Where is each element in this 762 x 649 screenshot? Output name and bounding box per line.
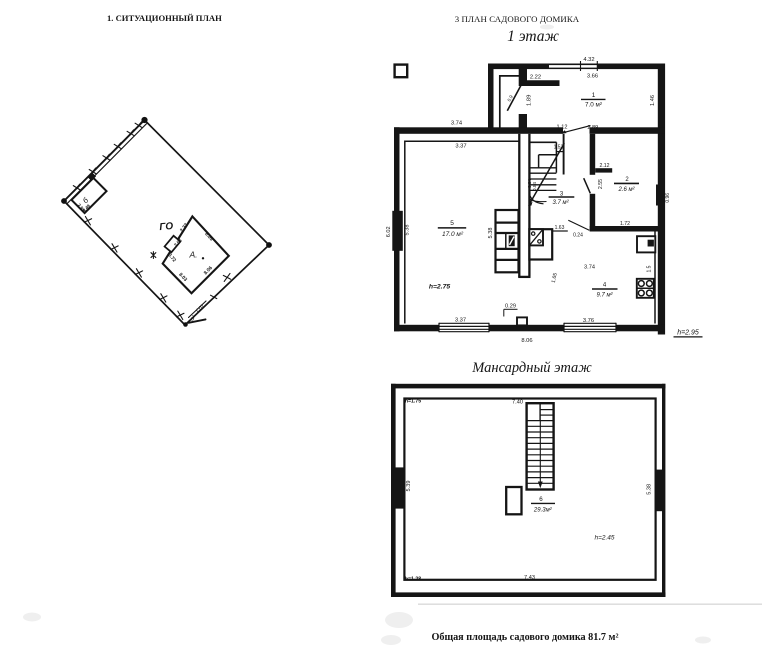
svg-text:1 этаж: 1 этаж — [507, 28, 559, 45]
svg-text:1: 1 — [592, 92, 596, 99]
svg-text:0.24: 0.24 — [573, 232, 583, 238]
svg-text:5.39: 5.39 — [406, 481, 412, 492]
svg-text:9.7 м²: 9.7 м² — [596, 292, 613, 298]
svg-text:5.38: 5.38 — [646, 484, 652, 495]
svg-text:3 ПЛАН САДОВОГО ДОМИКА: 3 ПЛАН САДОВОГО ДОМИКА — [455, 14, 580, 24]
svg-text:h=2.45: h=2.45 — [594, 535, 614, 542]
svg-text:3.37: 3.37 — [455, 144, 466, 150]
svg-text:0.84: 0.84 — [532, 182, 537, 191]
svg-text:1.72: 1.72 — [620, 221, 630, 227]
svg-text:2.22: 2.22 — [530, 74, 541, 80]
svg-text:3.74: 3.74 — [451, 121, 463, 127]
svg-text:5.38: 5.38 — [405, 225, 411, 236]
svg-text:2.89: 2.89 — [587, 125, 598, 131]
svg-text:Общая площадь садового домика: Общая площадь садового домика 81.7 м² — [431, 632, 618, 643]
svg-text:1.5: 1.5 — [647, 265, 653, 272]
svg-text:3.66: 3.66 — [587, 74, 598, 80]
svg-text:6.02: 6.02 — [386, 226, 392, 237]
svg-text:Мансардный этаж: Мансардный этаж — [471, 360, 592, 376]
svg-text:2.12: 2.12 — [599, 163, 609, 169]
svg-text:h=1.75: h=1.75 — [405, 399, 421, 405]
svg-text:1.89: 1.89 — [526, 95, 532, 106]
svg-text:h=2.75: h=2.75 — [429, 284, 451, 291]
svg-text:3.74: 3.74 — [584, 264, 595, 270]
svg-text:8.06: 8.06 — [521, 338, 532, 344]
svg-text:0.96: 0.96 — [665, 193, 671, 203]
svg-text:2.6 м²: 2.6 м² — [617, 187, 635, 193]
svg-text:1.63: 1.63 — [555, 225, 565, 231]
svg-text:2.55: 2.55 — [598, 179, 604, 189]
svg-text:1.46: 1.46 — [650, 95, 656, 106]
svg-text:1. СИТУАЦИОННЫЙ ПЛАН: 1. СИТУАЦИОННЫЙ ПЛАН — [107, 13, 222, 23]
svg-text:3.76: 3.76 — [583, 318, 594, 324]
svg-text:1.12: 1.12 — [557, 124, 568, 130]
svg-text:6: 6 — [539, 496, 543, 503]
svg-text:5.38: 5.38 — [488, 228, 494, 239]
svg-text:0.29: 0.29 — [505, 304, 516, 310]
svg-text:4.32: 4.32 — [583, 57, 594, 63]
svg-text:29.3м²: 29.3м² — [533, 508, 553, 514]
svg-text:5: 5 — [450, 220, 454, 227]
svg-text:1.52: 1.52 — [554, 144, 564, 150]
svg-text:7.40: 7.40 — [512, 399, 523, 405]
svg-text:h=1.28: h=1.28 — [405, 576, 421, 582]
svg-text:h=2.95: h=2.95 — [677, 330, 699, 337]
svg-text:А.: А. — [188, 250, 197, 260]
svg-text:7.0 м²: 7.0 м² — [585, 102, 602, 109]
svg-text:3.7 м²: 3.7 м² — [553, 200, 570, 206]
svg-text:ГО: ГО — [159, 221, 174, 233]
svg-text:3.37: 3.37 — [455, 318, 466, 324]
svg-text:7.43: 7.43 — [524, 575, 535, 581]
svg-text:17.0 м²: 17.0 м² — [442, 231, 464, 238]
